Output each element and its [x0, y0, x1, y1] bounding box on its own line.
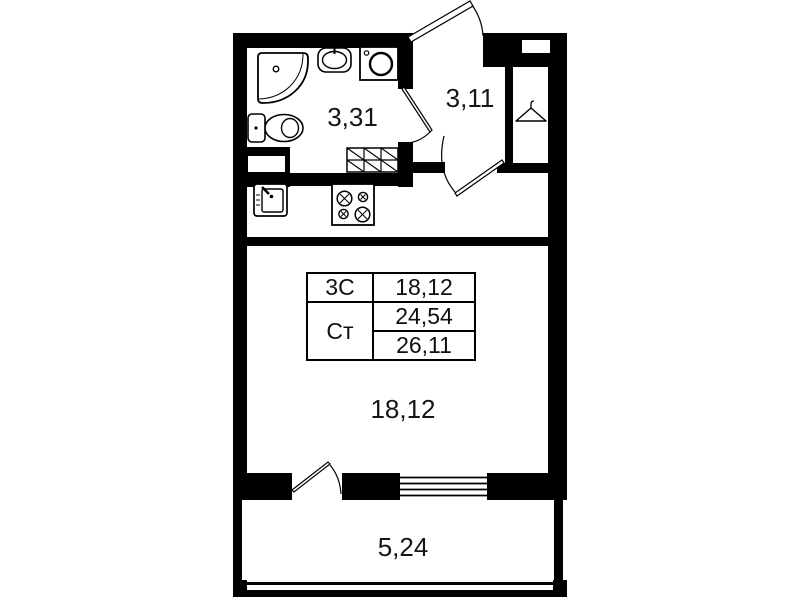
- wall-segment: [505, 67, 513, 163]
- room-door-icon: [442, 136, 504, 196]
- spec-value-cell: 24,54: [373, 302, 475, 331]
- balcony-door-icon: [292, 462, 341, 494]
- washing-machine-icon: [360, 47, 398, 80]
- wall-segment: [233, 33, 247, 500]
- floorplan-page: 3,31 3,11 18,12 5,24 3С 18,12 Ст 24,54 2…: [0, 0, 799, 600]
- vent-shaft-icon: [347, 148, 398, 172]
- apartment-spec-table: 3С 18,12 Ст 24,54 26,11: [306, 272, 476, 361]
- wall-segment: [233, 237, 567, 246]
- wall-segment: [413, 162, 445, 173]
- shower-icon: [258, 53, 308, 103]
- spec-value-cell: 18,12: [373, 273, 475, 302]
- entrance-door-icon: [408, 1, 483, 42]
- living-room-area-label: 18,12: [340, 396, 466, 422]
- wall-segment: [233, 473, 292, 500]
- wall-segment: [342, 473, 400, 500]
- window-icon: [400, 478, 487, 496]
- kitchen-sink-icon: [254, 184, 287, 216]
- bathroom-area-label: 3,31: [300, 104, 405, 130]
- hallway-area-label: 3,11: [417, 85, 523, 111]
- spec-value-cell: 26,11: [373, 331, 475, 360]
- spec-type-cell: 3С: [307, 273, 373, 302]
- spec-type-cell: Ст: [307, 302, 373, 360]
- wall-niche: [522, 40, 550, 53]
- toilet-icon: [248, 114, 303, 142]
- balcony-railing: [233, 582, 567, 597]
- wall-segment: [548, 33, 567, 500]
- balcony-area-label: 5,24: [340, 534, 466, 560]
- wall-segment: [487, 473, 567, 500]
- wall-segment: [233, 33, 405, 48]
- wall-segment: [497, 163, 567, 173]
- wall-niche: [248, 156, 285, 172]
- stove-icon: [332, 184, 374, 225]
